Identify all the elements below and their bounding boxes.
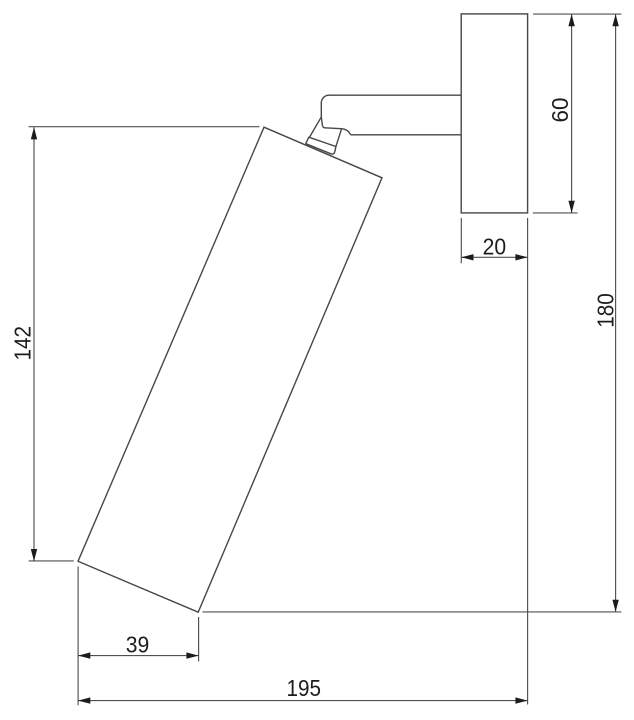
svg-text:39: 39 xyxy=(126,632,150,658)
svg-text:60: 60 xyxy=(547,98,573,123)
svg-text:142: 142 xyxy=(9,326,35,361)
svg-text:180: 180 xyxy=(592,293,618,328)
svg-text:195: 195 xyxy=(286,675,321,701)
svg-text:20: 20 xyxy=(483,233,507,259)
